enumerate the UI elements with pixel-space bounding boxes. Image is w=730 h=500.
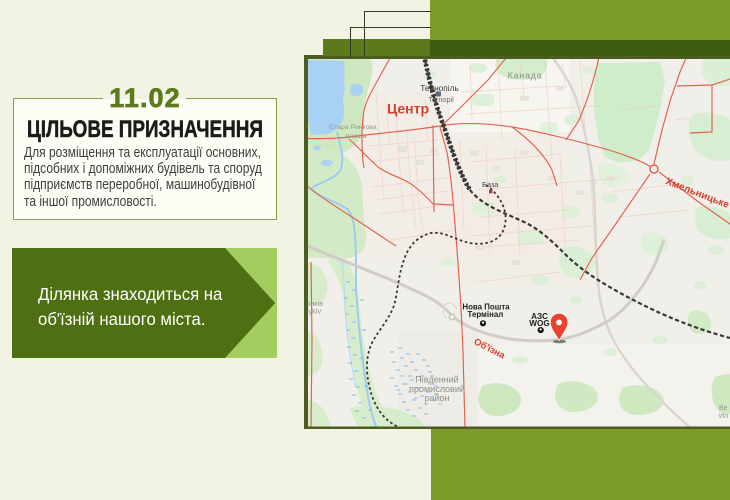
svg-text:Ил: Ил [719, 413, 728, 420]
svg-text:Центр: Центр [387, 101, 429, 117]
svg-text:район: район [424, 393, 449, 403]
svg-text:Ternopil: Ternopil [428, 95, 454, 104]
svg-text:rykiv: rykiv [306, 307, 321, 316]
svg-text:Південний: Південний [415, 375, 458, 385]
svg-text:Стара Ринкова: Стара Ринкова [329, 124, 377, 131]
svg-text:База: База [482, 180, 499, 189]
svg-text:площа: площа [346, 133, 367, 140]
svg-text:Тернопіль: Тернопіль [420, 83, 459, 93]
svg-text:Канада: Канада [508, 71, 543, 81]
svg-text:Ве: Ве [719, 405, 728, 412]
svg-text:Термінал: Термінал [468, 310, 504, 319]
svg-text:WOG: WOG [529, 319, 549, 328]
